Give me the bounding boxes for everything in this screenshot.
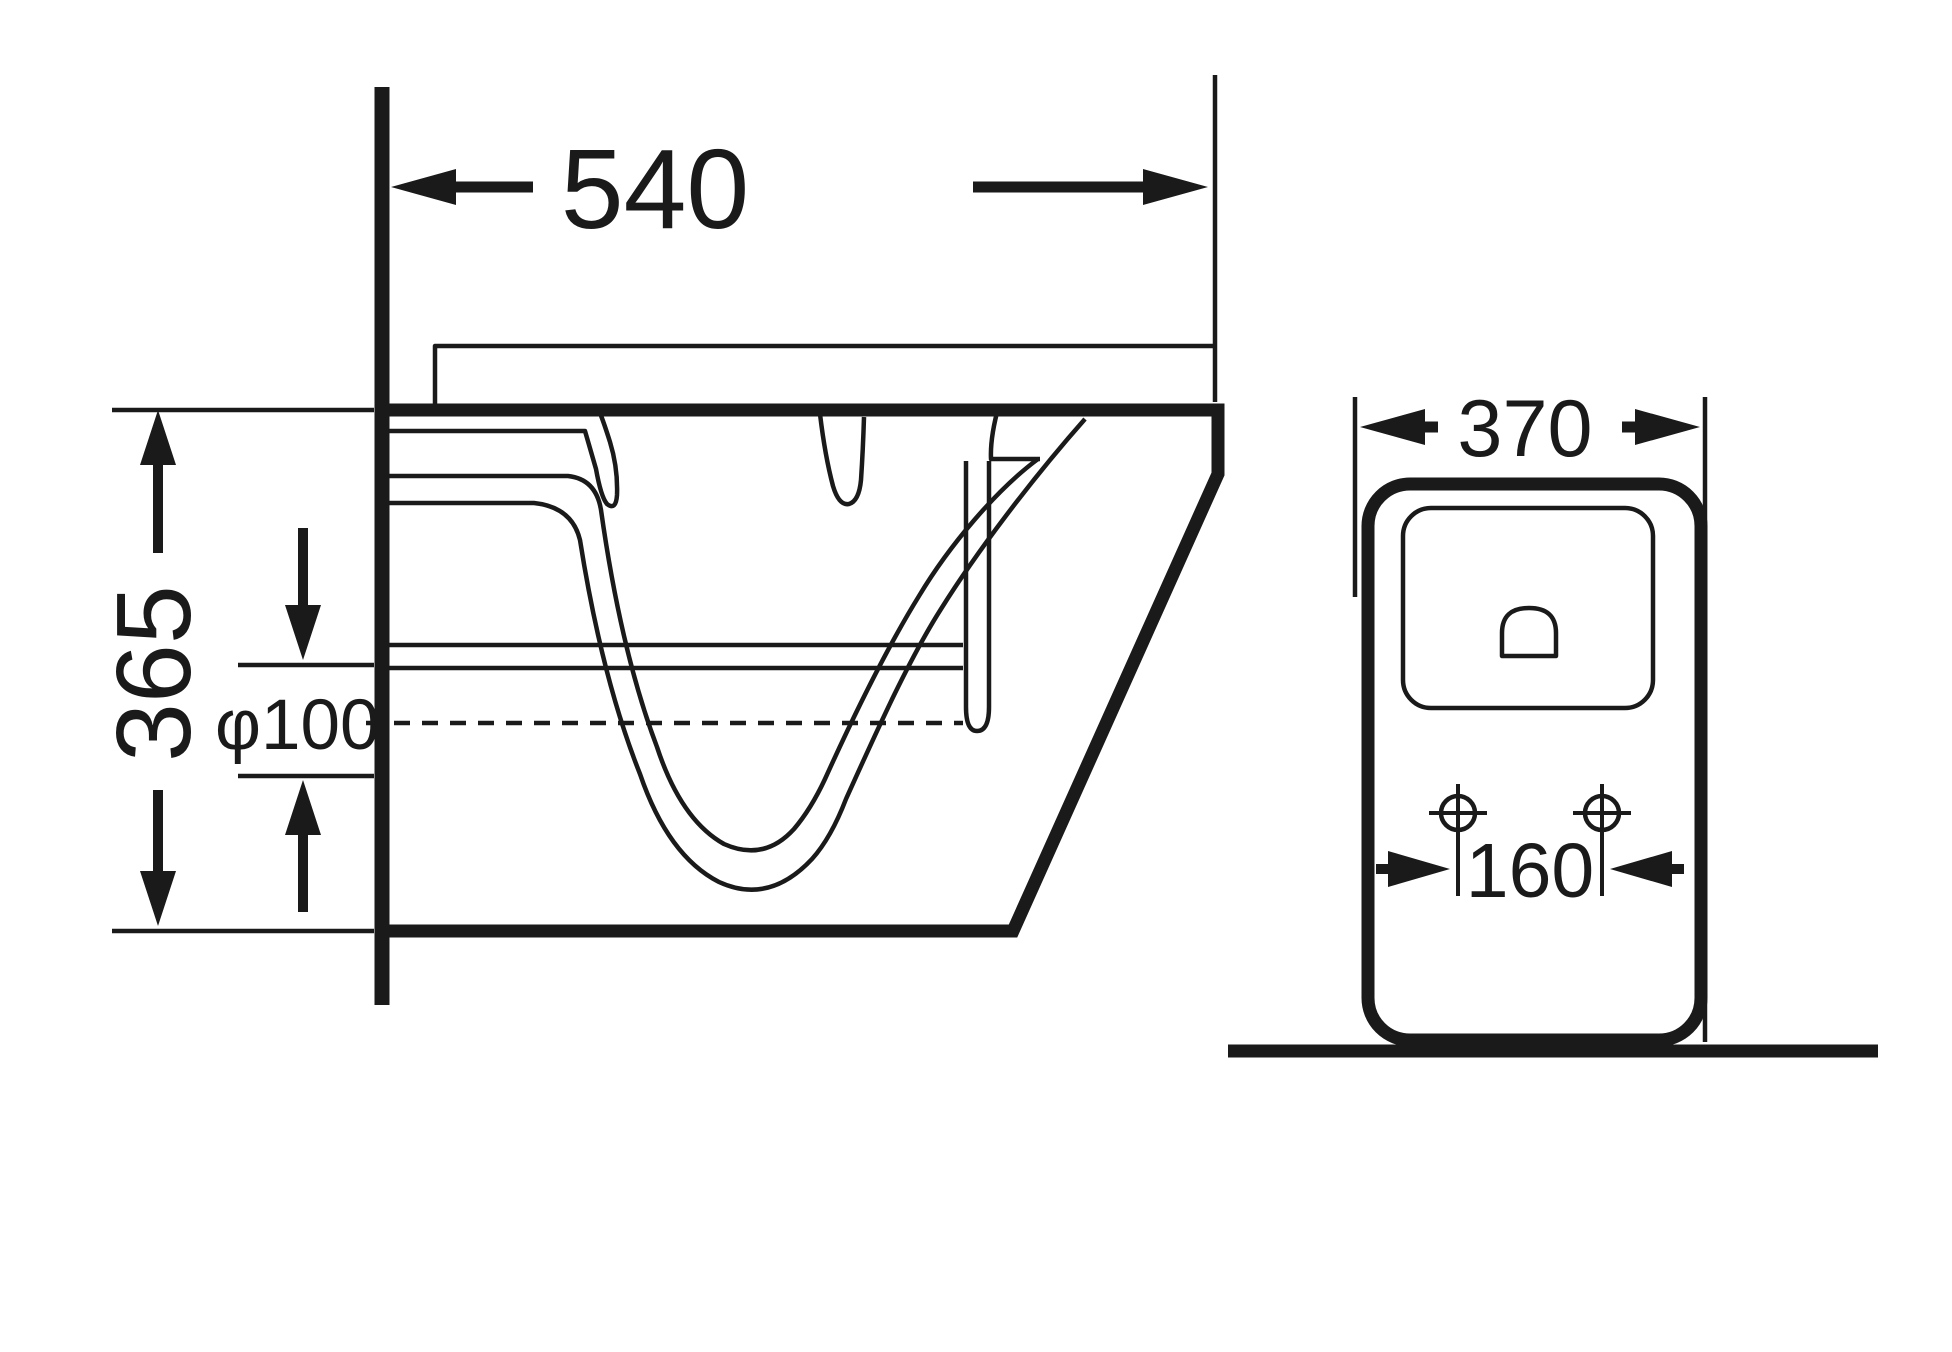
- arrowhead-right-icon: [1635, 409, 1700, 445]
- dimension-phi100: φ100: [215, 528, 380, 912]
- arrowhead-down-icon: [285, 605, 321, 660]
- arrowhead-left-icon: [391, 169, 456, 205]
- back-view: [1228, 484, 1878, 1051]
- rim-channel-spout-right: [820, 414, 864, 504]
- side-view: [366, 87, 1218, 1005]
- arrowhead-up-icon: [140, 410, 176, 465]
- dim-370-label: 370: [1457, 384, 1592, 474]
- dimension-365: 365: [95, 410, 374, 931]
- dim-160-label: 160: [1466, 828, 1594, 914]
- arrowhead-right-icon: [1143, 169, 1208, 205]
- dim-365-label: 365: [95, 585, 213, 762]
- toilet-dimension-drawing: 540 365 φ100: [0, 0, 1952, 1352]
- seat-outline: [435, 346, 1215, 406]
- flush-pipe-section: [966, 461, 989, 731]
- arrowhead-left-icon: [1610, 851, 1672, 887]
- drain-outlet-arch: [1502, 608, 1556, 656]
- dim-540-label: 540: [561, 126, 750, 252]
- dim-phi100-label: φ100: [215, 686, 380, 765]
- toilet-body-outline: [375, 410, 1218, 931]
- arrowhead-down-icon: [140, 871, 176, 926]
- bowl-outer-shell-line: [382, 419, 1085, 890]
- dimension-540: 540: [391, 75, 1215, 402]
- rim-channel-spout-left: [382, 413, 617, 506]
- arrowhead-left-icon: [1360, 409, 1425, 445]
- dimension-160: 160: [1376, 828, 1684, 914]
- arrowhead-up-icon: [285, 780, 321, 835]
- technical-drawing-page: 540 365 φ100: [0, 0, 1952, 1352]
- arrowhead-right-icon: [1388, 851, 1450, 887]
- bowl-inner-wall-line: [382, 459, 1038, 850]
